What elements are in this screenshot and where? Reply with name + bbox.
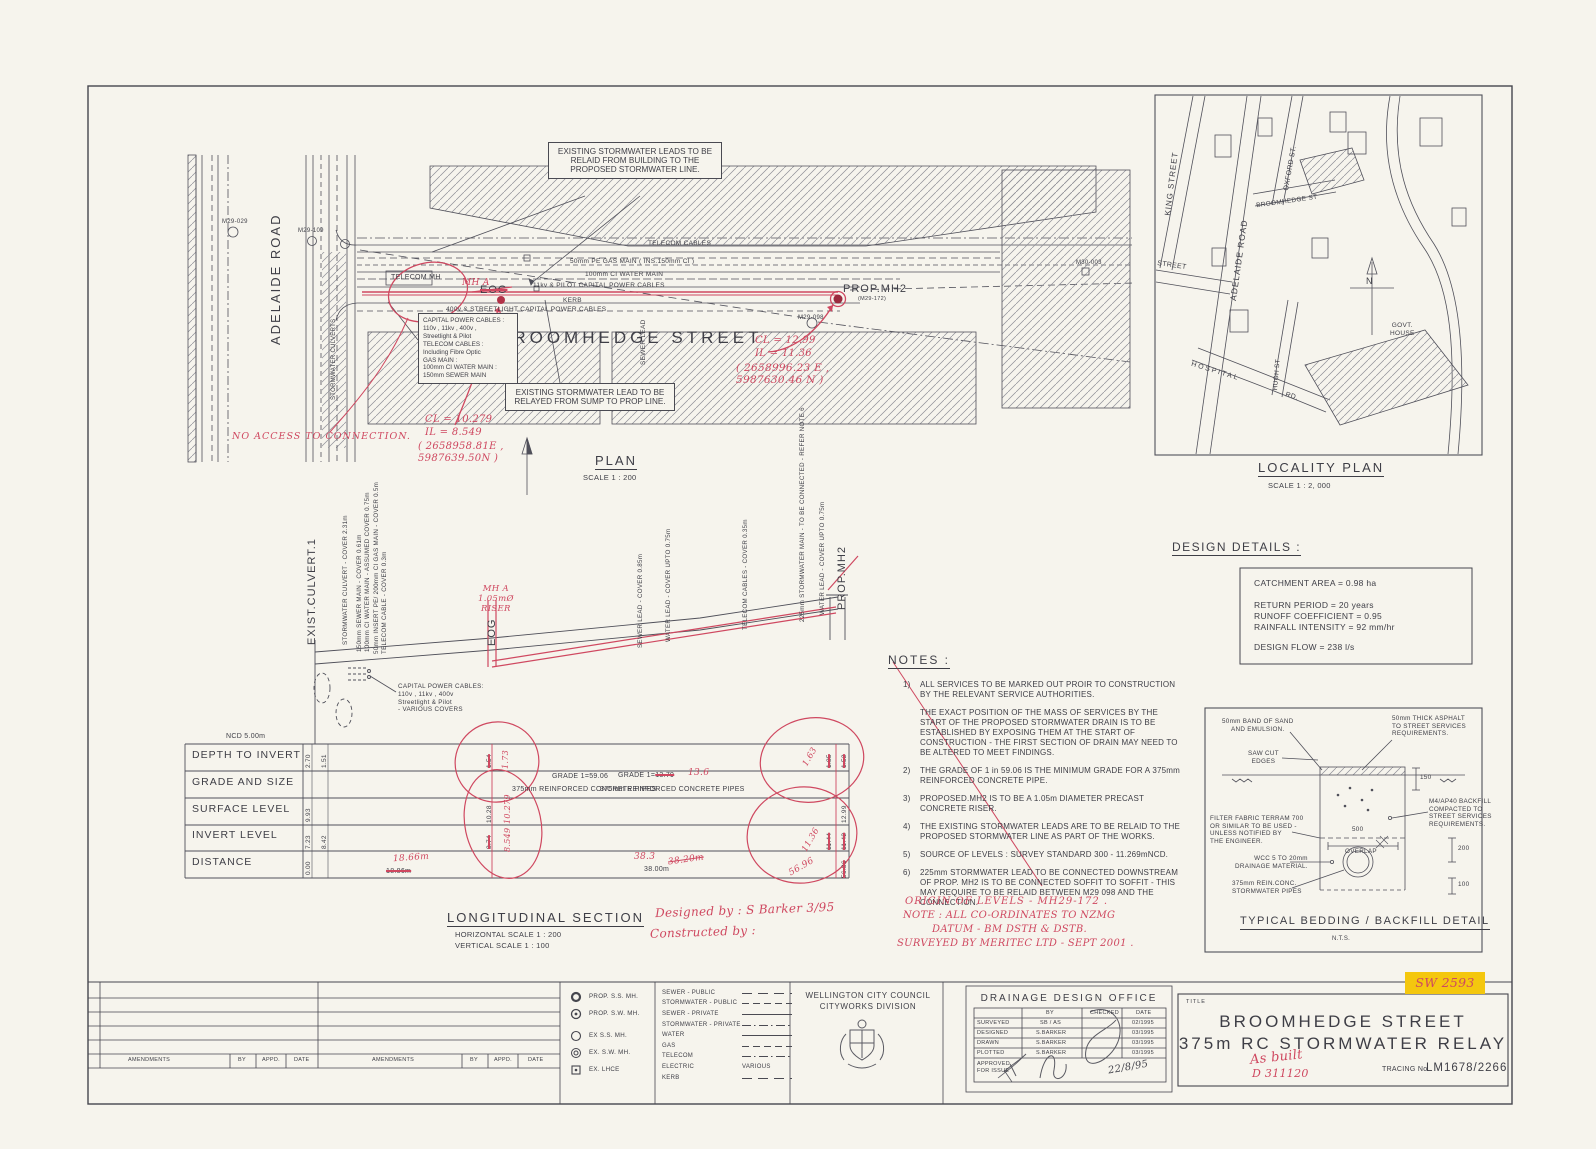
note-number: 5)	[903, 850, 920, 860]
note-number	[903, 708, 920, 758]
prop-sw-mh-icon	[570, 1008, 582, 1020]
appd-header: APPD.	[262, 1057, 280, 1063]
section-service-label: WATER LEAD - COVER UPTO 0.75m	[665, 529, 672, 642]
design-flow-value: DESIGN FLOW = 238 l/s	[1254, 642, 1355, 652]
legend-item: WATER	[662, 1030, 792, 1041]
surveyed-date: 02/1995	[1132, 1020, 1154, 1026]
coordinates-datum-annotation: NOTE : ALL CO-ORDINATES TO NZMG	[903, 910, 1115, 922]
manhole-label: M30-003	[1076, 260, 1102, 267]
filter-fabric-label: FILTER FABRIC TERRAM 700 OR SIMILAR TO B…	[1210, 815, 1303, 845]
grade-right-prefix: GRADE 1=	[618, 772, 655, 779]
exist-culvert-label: EXIST.CULVERT.1	[306, 538, 319, 645]
table-row-label: DISTANCE	[192, 856, 252, 868]
longitudinal-section-title: LONGITUDINAL SECTION	[447, 910, 644, 927]
prop-mh2-label: PROP.MH2	[843, 283, 907, 296]
appd-header: APPD.	[494, 1057, 512, 1063]
designed-date: 03/1995	[1132, 1030, 1154, 1036]
amendments-header: AMENDMENTS	[372, 1057, 414, 1063]
note-item: 1)ALL SERVICES TO BE MARKED OUT PROIR TO…	[903, 680, 1183, 700]
note-item: 4)THE EXISTING STORMWATER LEADS ARE TO B…	[903, 822, 1183, 842]
legend-label: PROP. S.S. MH.	[589, 993, 638, 1000]
invert-value-asbuilt: 8.549	[503, 828, 512, 852]
legend-label: SEWER - PUBLIC	[662, 990, 742, 997]
note-number: 2)	[903, 766, 920, 786]
backfill-label: M4/AP40 BACKFILL COMPACTED TO STREET SER…	[1429, 798, 1492, 828]
note-text: SOURCE OF LEVELS : SURVEY STANDARD 300 -…	[920, 850, 1183, 860]
grade-right-asbuilt: 13.6	[688, 768, 709, 779]
pipe-right-label: 375mm REINFORCED CONCRETE PIPES	[600, 786, 745, 794]
services-note-box: CAPITAL POWER CABLES : 110v , 11kv , 400…	[418, 313, 518, 384]
note-item: 2)THE GRADE OF 1 in 59.06 IS THE MINIMUM…	[903, 766, 1183, 786]
telecom-mh-label: TELECOM MH	[391, 274, 441, 282]
distance-value-superseded: 18.86m	[386, 868, 411, 876]
legend-item: SEWER - PRIVATE	[662, 1009, 792, 1020]
note-item: 3)PROPOSED.MH2 IS TO BE A 1.05m DIAMETER…	[903, 794, 1183, 814]
surveyed-by: SB / AS	[1040, 1020, 1061, 1026]
coords-annotation-mh2: ( 2658996.23 E , 5987630.46 N )	[736, 362, 829, 387]
note-item: THE EXACT POSITION OF THE MASS OF SERVIC…	[903, 708, 1183, 758]
horizontal-scale: HORIZONTAL SCALE 1 : 200	[455, 931, 561, 940]
mh-a-riser-annotation: MH A 1.05mØ RISER	[478, 584, 514, 614]
bedding-detail-title: TYPICAL BEDDING / BACKFILL DETAIL	[1240, 915, 1490, 930]
legend-label: EX S.S. MH.	[589, 1032, 627, 1039]
dim-150: 150	[1420, 774, 1431, 781]
office-heading: DRAINAGE DESIGN OFFICE	[966, 993, 1172, 1005]
no-access-annotation: NO ACCESS TO CONNECTION.	[232, 431, 411, 442]
legend-label: TELECOM	[662, 1053, 742, 1060]
coords-annotation-eog: ( 2658958.81E , 5987639.50N )	[418, 441, 504, 465]
il-annotation-eog: IL = 8.549	[425, 427, 482, 439]
table-row-label: DEPTH TO INVERT	[192, 749, 301, 761]
invert-value-superseded: 8.74	[486, 835, 494, 849]
prop-mh2-section-label: PROP.MH2	[836, 546, 849, 610]
kerb-label: KERB	[563, 297, 582, 305]
dim-200: 200	[1458, 845, 1469, 852]
legend-item: KERB	[662, 1073, 792, 1084]
manhole-label: M29-098	[798, 315, 824, 322]
note-text: PROPOSED.MH2 IS TO BE A 1.05m DIAMETER P…	[920, 794, 1183, 814]
ex-ss-mh-icon	[570, 1030, 582, 1042]
depth-value-superseded: 1.52	[841, 754, 849, 768]
dim-500: 500	[1352, 826, 1363, 833]
legend-label: ELECTRIC	[662, 1064, 742, 1071]
manhole-label: M29-109	[298, 228, 324, 235]
designed-by: S.BARKER	[1036, 1030, 1066, 1036]
power-11kv-label: 11kv & PILOT CAPITAL POWER CABLES	[533, 282, 665, 290]
note-number: 4)	[903, 822, 920, 842]
depth-value-asbuilt: 1.73	[501, 750, 510, 769]
broomhedge-street-label: BROOMHEDGE STREET	[498, 328, 762, 348]
notes-heading: NOTES :	[888, 653, 950, 669]
manhole-legend: PROP. S.S. MH. PROP. S.W. MH. EX S.S. MH…	[570, 988, 640, 1078]
gas-main-label: 50mm PE GAS MAIN ( INS.150mm CI )	[570, 258, 694, 266]
design-details-heading: DESIGN DETAILS :	[1172, 540, 1301, 556]
section-service-label: TELECOM CABLE - COVER 0.3m	[381, 551, 388, 654]
line-sample	[742, 1025, 792, 1026]
date-header: DATE	[528, 1057, 543, 1063]
note-text: ALL SERVICES TO BE MARKED OUT PROIR TO C…	[920, 680, 1183, 700]
note-item: 5)SOURCE OF LEVELS : SURVEY STANDARD 300…	[903, 850, 1183, 860]
ex-sw-mh-icon	[570, 1047, 582, 1059]
prop-ss-mh-icon	[570, 991, 582, 1003]
distance-value: 38.00m	[644, 866, 669, 874]
datum-bm-annotation: DATUM - BM DSTH & DSTB.	[932, 924, 1087, 936]
legend-item: STORMWATER - PRIVATE	[662, 1020, 792, 1031]
d-number-annotation: D 311120	[1252, 1068, 1309, 1081]
section-service-label: WATER LEAD - COVER UPTO 0.75m	[819, 502, 826, 615]
rainfall-intensity-value: RAINFALL INTENSITY = 92 mm/hr	[1254, 622, 1395, 632]
line-sample	[742, 1078, 792, 1079]
depth-value: 1.51	[321, 754, 329, 768]
distance-value-superseded: 56.86	[841, 860, 849, 878]
approved-label: APPROVED FOR ISSUE	[977, 1061, 1010, 1075]
dim-100: 100	[1458, 881, 1469, 888]
line-sample	[742, 993, 792, 994]
legend-item: SEWER - PUBLIC	[662, 988, 792, 999]
row-surveyed: SURVEYED	[977, 1020, 1010, 1026]
prop-mh2-id: (M29-172)	[858, 296, 886, 302]
legend-label: KERB	[662, 1075, 742, 1082]
catchment-area-value: CATCHMENT AREA = 0.98 ha	[1254, 578, 1376, 588]
telecom-cables-label: TELECOM CABLES	[648, 240, 711, 248]
section-service-label: STORMWATER CULVERT - COVER 2.31m	[342, 515, 349, 645]
vertical-scale: VERTICAL SCALE 1 : 100	[455, 942, 550, 951]
legend-item: TELECOM	[662, 1052, 792, 1063]
asphalt-label: 50mm THICK ASPHALT TO STREET SERVICES RE…	[1392, 715, 1466, 738]
drawn-date: 03/1995	[1132, 1040, 1154, 1046]
section-service-label: 225mm STORMWATER MAIN - TO BE CONNECTED …	[799, 407, 806, 622]
stormwater-pipes-label: 375mm REIN.CONC. STORMWATER PIPES	[1232, 880, 1302, 895]
line-sample	[742, 1003, 792, 1004]
amendments-header: AMENDMENTS	[128, 1057, 170, 1063]
plan-title: PLAN	[595, 453, 637, 470]
drawing-title-line2: 375m RC STORMWATER RELAY	[1178, 1034, 1508, 1054]
notes-list: 1)ALL SERVICES TO BE MARKED OUT PROIR TO…	[903, 680, 1183, 908]
distance-value-asbuilt: 38.3	[634, 852, 655, 863]
line-sample	[742, 1035, 792, 1036]
note-number: 1)	[903, 680, 920, 700]
invert-value-superseded: 11.44	[826, 833, 834, 850]
line-sample	[742, 1056, 792, 1057]
line-sample	[742, 1014, 792, 1015]
manhole-label: M29-029	[222, 219, 248, 226]
cl-annotation-mh2: CL = 12.99	[755, 335, 816, 347]
cl-annotation-eog: CL = 10.279	[425, 414, 492, 426]
legend-item: GAS	[662, 1041, 792, 1052]
distance-value: 0.00	[305, 861, 313, 875]
nts-label: N.T.S.	[1332, 936, 1350, 943]
eog-label: EOG	[480, 284, 507, 297]
electric-various-label: VARIOUS	[742, 1064, 771, 1071]
eog-section-label: EOG	[486, 619, 499, 646]
surface-value-asbuilt: 10.279	[503, 794, 512, 824]
drawing-linework	[0, 0, 1596, 1149]
section-service-label: SEWER LEAD - COVER 0.85m	[637, 554, 644, 648]
ex-lhce-icon	[570, 1064, 582, 1076]
table-row-label: SURFACE LEVEL	[192, 803, 290, 815]
depth-value-superseded: 1.54	[486, 754, 494, 768]
depth-value-superseded: 1.85	[826, 754, 834, 768]
il-annotation-mh2: IL = 11.36	[755, 348, 812, 360]
datum-label: NCD 5.00m	[226, 733, 265, 741]
surface-value-superseded: 10.28	[486, 805, 494, 823]
line-sample	[742, 1046, 792, 1047]
note-number: 3)	[903, 794, 920, 814]
sewer-lead-label: SEWER LEAD	[640, 319, 648, 365]
legend-label: STORMWATER - PRIVATE	[662, 1022, 742, 1029]
grade-left-label: GRADE 1=59.06	[552, 773, 608, 781]
table-row-label: GRADE AND SIZE	[192, 776, 294, 788]
col-checked: CHECKED	[1090, 1010, 1119, 1016]
legend-label: GAS	[662, 1043, 742, 1050]
overlap-label: OVERLAP	[1345, 848, 1377, 855]
capital-cables-section-label: CAPITAL POWER CABLES: 110v , 11kv , 400v…	[398, 683, 484, 714]
col-date: DATE	[1136, 1010, 1151, 1016]
grade-right-superseded: 13.79	[655, 772, 674, 779]
water-main-label: 100mm CI WATER MAIN	[585, 271, 663, 279]
north-letter-locality: N	[1366, 276, 1373, 287]
grade-right-label: GRADE 1=13.79	[618, 772, 674, 780]
row-plotted: PLOTTED	[977, 1050, 1004, 1056]
section-service-label: 50mm INSERT PE/ 200mm CI GAS MAIN - COVE…	[373, 482, 380, 654]
legend-label: EX. LHCE	[589, 1066, 620, 1073]
legend-item: EX. LHCE	[570, 1061, 640, 1078]
table-row-label: INVERT LEVEL	[192, 829, 278, 841]
legend-item: EX S.S. MH.	[570, 1027, 640, 1044]
adelaide-road-label: ADELAIDE ROAD	[268, 214, 283, 345]
surface-value: 12.99	[841, 805, 849, 823]
council-name: WELLINGTON CITY COUNCIL	[798, 991, 938, 1000]
invert-value: 7.23	[305, 835, 313, 849]
legend-label: STORMWATER - PUBLIC	[662, 1000, 742, 1007]
legend-label: EX. S.W. MH.	[589, 1049, 630, 1056]
drawing-sheet: ADELAIDE ROAD STORMWATER CULVERTS M29-02…	[0, 0, 1596, 1149]
stormwater-culverts-label: STORMWATER CULVERTS	[331, 319, 338, 400]
legend-item: PROP. S.W. MH.	[570, 1005, 640, 1022]
col-by: BY	[1046, 1010, 1054, 1016]
tracing-no-value: LM1678/2266	[1426, 1062, 1507, 1076]
note-text: THE EXACT POSITION OF THE MASS OF SERVIC…	[920, 708, 1183, 758]
note-box-relaid-from-building: EXISTING STORMWATER LEADS TO BE RELAID F…	[548, 142, 722, 179]
runoff-coefficient-value: RUNOFF COEFFICIENT = 0.95	[1254, 611, 1382, 621]
note-box-relayed-from-sump: EXISTING STORMWATER LEAD TO BE RELAYED F…	[505, 383, 675, 411]
tracing-no-label: TRACING No.	[1382, 1066, 1430, 1074]
sand-band-label: 50mm BAND OF SAND AND EMULSION.	[1222, 718, 1294, 733]
plan-scale: SCALE 1 : 200	[583, 474, 637, 483]
drawn-by: S.BARKER	[1036, 1040, 1066, 1046]
saw-cut-label: SAW CUT EDGES	[1248, 750, 1279, 765]
row-drawn: DRAWN	[977, 1040, 999, 1046]
legend-label: PROP. S.W. MH.	[589, 1010, 640, 1017]
legend-label: WATER	[662, 1032, 742, 1039]
legend-item: PROP. S.S. MH.	[570, 988, 640, 1005]
note-text: THE EXISTING STORMWATER LEADS ARE TO BE …	[920, 822, 1183, 842]
legend-label: SEWER - PRIVATE	[662, 1011, 742, 1018]
by-header: BY	[238, 1057, 246, 1063]
section-service-label: TELECOM CABLES - COVER 0.35m	[742, 519, 749, 630]
invert-value-superseded: 11.42	[841, 833, 849, 850]
locality-plan-title: LOCALITY PLAN	[1258, 460, 1384, 477]
note-text: THE GRADE OF 1 in 59.06 IS THE MINIMUM G…	[920, 766, 1183, 786]
surface-value: 9.93	[305, 808, 313, 822]
council-division: CITYWORKS DIVISION	[798, 1002, 938, 1011]
plotted-by: S.BARKER	[1036, 1050, 1066, 1056]
drainage-material-label: WCC 5 TO 20mm DRAINAGE MATERIAL.	[1235, 855, 1308, 870]
legend-item: EX. S.W. MH.	[570, 1044, 640, 1061]
section-service-label: 150mm SEWER MAIN - COVER 0.61m	[356, 534, 363, 652]
drawing-title-line1: BROOMHEDGE STREET	[1178, 1012, 1508, 1032]
locality-plan-scale: SCALE 1 : 2, 000	[1268, 482, 1331, 491]
row-designed: DESIGNED	[977, 1030, 1008, 1036]
surveyed-by-annotation: SURVEYED BY MERITEC LTD - SEPT 2001 .	[897, 938, 1134, 950]
by-header: BY	[470, 1057, 478, 1063]
title-label: TITLE	[1186, 999, 1206, 1005]
section-service-label: 100mm CI WATER MAIN - ASSUMED COVER 0.75…	[364, 492, 371, 652]
sw-number-tag: SW 2593	[1405, 972, 1485, 994]
invert-value: 8.42	[321, 835, 329, 849]
plotted-date: 03/1995	[1132, 1050, 1154, 1056]
linetype-legend: SEWER - PUBLIC STORMWATER - PUBLIC SEWER…	[662, 988, 792, 1083]
depth-value: 2.70	[305, 754, 313, 768]
origin-of-levels-annotation: ORIGIN OF LEVELS - MH29-172 .	[905, 896, 1108, 908]
date-header: DATE	[294, 1057, 309, 1063]
legend-item: STORMWATER - PUBLIC	[662, 999, 792, 1010]
legend-item: ELECTRICVARIOUS	[662, 1062, 792, 1073]
return-period-value: RETURN PERIOD = 20 years	[1254, 600, 1374, 610]
govt-house-label: GOVT. HOUSE	[1390, 322, 1415, 337]
